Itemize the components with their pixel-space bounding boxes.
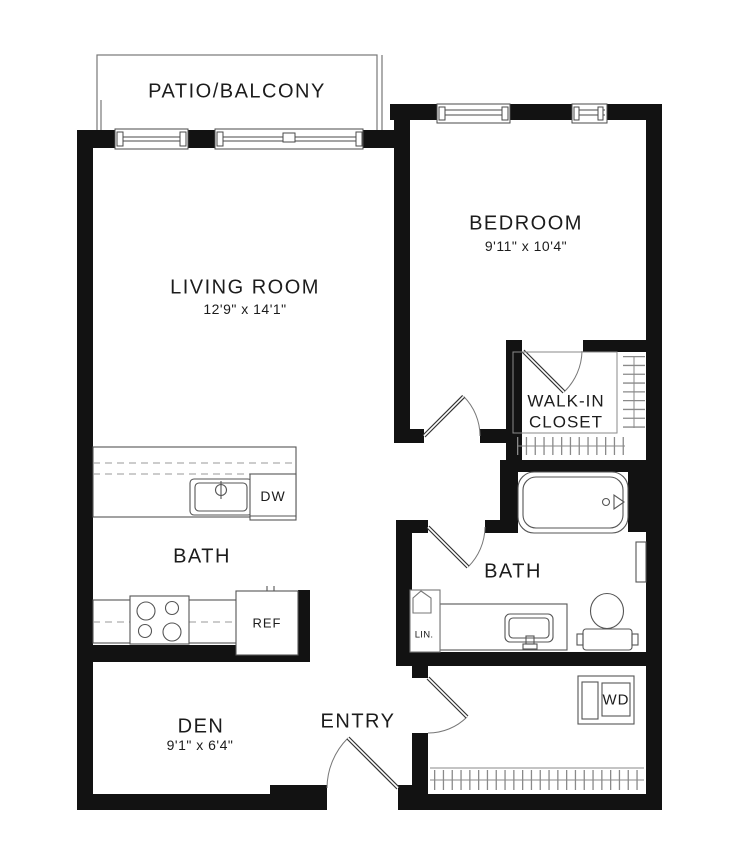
den-label: DEN (178, 716, 225, 739)
bedroom-door-icon (424, 396, 480, 436)
bathroom-door-icon (428, 527, 485, 567)
walk-in-closet-door-icon (523, 351, 582, 392)
bedroom-window-1-icon (437, 104, 510, 123)
bathroom-label: BATH (484, 561, 542, 584)
toilet-icon (577, 594, 638, 651)
living-room-slider-window-icon (215, 129, 363, 149)
living-room-dimensions: 12'9" x 14'1" (203, 301, 286, 317)
washer-dryer-label: WD (603, 692, 630, 709)
floorplan: PATIO/BALCONY LIVING ROOM 12'9" x 14'1" … (0, 0, 734, 854)
vanity-icon (440, 604, 567, 650)
dishwasher-label: DW (260, 488, 285, 504)
bathroom-mirror-icon (636, 542, 646, 582)
laundry-rod-icon (430, 768, 644, 780)
den-dimensions: 9'1" x 6'4" (167, 737, 234, 753)
stove-icon (130, 596, 189, 644)
entry-door-icon (327, 738, 398, 788)
living-room-label: LIVING ROOM (170, 277, 320, 300)
walk-in-closet-label-line1: WALK-IN (527, 391, 604, 412)
bedroom-window-2-icon (572, 104, 607, 123)
laundry-closet-door-icon (428, 678, 467, 733)
refrigerator-label: REF (253, 616, 282, 631)
bedroom-dimensions: 9'11" x 10'4" (485, 238, 567, 254)
entry-label: ENTRY (321, 711, 396, 734)
patio-label: PATIO/BALCONY (148, 81, 326, 104)
linen-closet-label: LIN. (415, 630, 434, 641)
walk-in-closet-label-line2: CLOSET (529, 412, 603, 433)
living-room-window-icon (115, 129, 188, 149)
kitchen-area-label: BATH (173, 546, 231, 569)
bedroom-label: BEDROOM (469, 213, 583, 236)
bathtub-icon (518, 472, 628, 533)
linen-closet-icon (410, 590, 440, 652)
